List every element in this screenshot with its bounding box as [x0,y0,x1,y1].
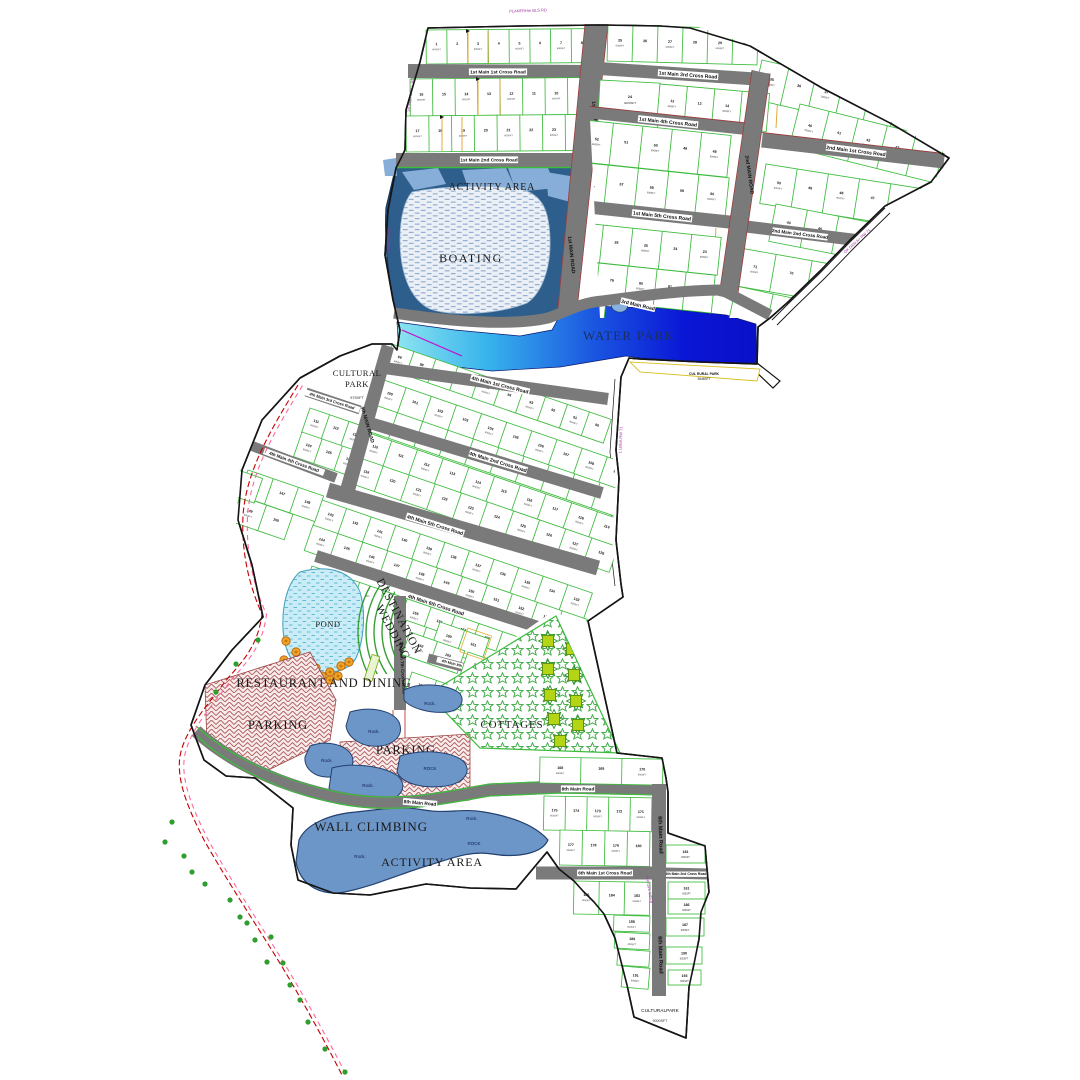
svg-text:172: 172 [616,810,622,814]
svg-text:600SFT: 600SFT [716,47,725,50]
svg-text:600SFT: 600SFT [593,815,602,818]
svg-text:174: 174 [573,809,579,813]
svg-text:52: 52 [595,137,599,141]
svg-text:Rock.: Rock. [368,729,380,734]
svg-text:600SFT: 600SFT [567,849,576,852]
svg-text:12: 12 [509,92,513,96]
svg-text:193: 193 [682,974,688,978]
svg-text:600SFT: 600SFT [627,926,636,929]
svg-text:153: 153 [543,614,550,620]
svg-text:8: 8 [581,41,583,45]
svg-text:78: 78 [581,275,585,279]
svg-text:26: 26 [643,39,647,43]
svg-text:600SFT: 600SFT [550,134,559,137]
svg-text:600SFT: 600SFT [638,773,647,776]
svg-text:600SFT: 600SFT [474,48,483,51]
svg-text:ACTIVITY AREA: ACTIVITY AREA [381,855,483,869]
svg-text:26: 26 [614,240,618,244]
svg-text:10: 10 [554,91,558,95]
svg-text:600SFT: 600SFT [612,850,621,853]
svg-text:7: 7 [560,41,562,45]
svg-text:175: 175 [552,808,558,812]
svg-text:15: 15 [442,92,446,96]
svg-text:49: 49 [683,146,687,150]
svg-text:600SFT: 600SFT [582,899,591,902]
svg-text:38: 38 [851,96,856,101]
svg-text:4th Main 3rd Cross Road: 4th Main 3rd Cross Road [309,391,356,410]
svg-text:Rock.: Rock. [321,758,333,763]
svg-text:191: 191 [633,973,639,978]
svg-text:1st Main 1st Cross Road: 1st Main 1st Cross Road [470,70,526,76]
svg-text:17: 17 [416,129,420,133]
svg-text:183: 183 [634,894,640,898]
svg-text:59: 59 [680,189,684,193]
svg-text:600SFT: 600SFT [515,47,524,50]
svg-text:600SFT: 600SFT [681,929,690,932]
svg-text:WALL CLIMBING: WALL CLIMBING [314,819,428,834]
svg-text:600SFT: 600SFT [898,206,907,210]
svg-text:184: 184 [609,893,615,897]
svg-text:600SFT: 600SFT [550,814,559,817]
svg-text:58: 58 [650,186,654,190]
svg-text:600SFT: 600SFT [417,99,426,102]
svg-text:ROCK: ROCK [467,841,480,846]
svg-text:1: 1 [436,42,438,46]
svg-text:600SFT: 600SFT [680,980,689,983]
svg-text:600SFT: 600SFT [432,48,441,51]
svg-text:RESTAURANT AND DINING: RESTAURANT AND DINING [236,676,411,690]
svg-text:190: 190 [681,952,687,956]
svg-text:3: 3 [477,42,479,46]
svg-text:46: 46 [902,201,907,206]
svg-text:WATER PARK: WATER PARK [583,328,675,343]
svg-text:186: 186 [684,903,690,907]
svg-text:29: 29 [718,41,722,45]
svg-text:9000SFT: 9000SFT [653,1019,669,1023]
svg-text:600SFT: 600SFT [680,958,689,961]
svg-text:CULTURAL: CULTURAL [333,368,382,378]
svg-text:600SFT: 600SFT [552,97,561,100]
svg-text:600SFT: 600SFT [822,283,831,288]
svg-text:13: 13 [487,92,491,96]
svg-text:3646SFT: 3646SFT [697,377,710,381]
svg-text:21: 21 [507,128,511,132]
svg-text:4000SFT: 4000SFT [624,101,637,105]
svg-text:Rock.: Rock. [354,854,366,859]
svg-text:44: 44 [786,221,791,226]
svg-text:25: 25 [618,38,622,42]
svg-text:27: 27 [585,237,589,241]
svg-text:11: 11 [532,92,536,96]
svg-text:1st Main 2nd Cross Road: 1st Main 2nd Cross Road [460,158,517,164]
svg-text:171: 171 [638,810,644,814]
svg-text:16: 16 [419,93,423,97]
svg-text:2: 2 [456,42,458,46]
svg-text:600SFT: 600SFT [633,900,642,903]
svg-text:600SFT: 600SFT [616,44,625,47]
svg-text:181: 181 [683,850,689,854]
svg-text:57: 57 [619,182,623,186]
svg-text:4: 4 [498,42,500,46]
svg-text:12: 12 [670,99,674,103]
svg-text:PARKING: PARKING [248,718,308,732]
svg-text:9750FT: 9750FT [350,395,364,400]
svg-text:49: 49 [808,186,813,191]
svg-text:COTTAGES: COTTAGES [481,719,544,731]
svg-text:177: 177 [568,843,574,847]
svg-text:600SFT: 600SFT [556,772,565,775]
svg-text:47: 47 [870,196,875,201]
svg-text:20: 20 [484,128,488,132]
svg-text:168: 168 [557,766,563,770]
svg-text:22: 22 [529,128,533,132]
svg-text:600SFT: 600SFT [557,47,566,50]
svg-text:187: 187 [682,923,688,927]
svg-text:600SFT: 600SFT [637,816,646,819]
svg-text:51: 51 [624,140,628,144]
svg-text:ACTIVITY AREA: ACTIVITY AREA [449,182,535,193]
svg-text:188: 188 [629,920,635,924]
svg-text:48: 48 [712,150,716,154]
svg-text:50: 50 [777,181,782,186]
svg-text:600SFT: 600SFT [681,856,690,859]
svg-text:25: 25 [644,244,648,248]
svg-text:169: 169 [598,767,604,771]
svg-text:600SFT: 600SFT [666,46,675,49]
svg-text:Rock.: Rock. [362,783,374,788]
svg-text:173: 173 [595,809,601,813]
svg-text:154: 154 [568,623,575,629]
svg-text:179: 179 [613,844,619,848]
svg-text:PLANFRHm BLS RD: PLANFRHm BLS RD [509,7,547,13]
svg-text:600SFT: 600SFT [682,909,691,912]
svg-text:CUL RURAL PARK: CUL RURAL PARK [689,372,720,376]
svg-text:39: 39 [879,103,884,108]
svg-text:600SFT: 600SFT [682,893,691,896]
svg-text:600SFT: 600SFT [628,943,637,946]
svg-text:600SFT: 600SFT [565,628,575,634]
svg-text:5: 5 [519,41,521,45]
svg-text:14: 14 [464,92,468,96]
svg-text:79: 79 [610,278,614,282]
svg-text:170: 170 [639,767,645,771]
svg-text:80: 80 [639,281,643,285]
svg-text:POND: POND [315,619,340,629]
svg-text:600SFT: 600SFT [504,134,513,137]
svg-text:Rock.: Rock. [424,701,436,706]
svg-text:189: 189 [629,937,635,941]
svg-text:24: 24 [673,247,677,251]
svg-text:14: 14 [725,104,729,108]
svg-text:13: 13 [697,101,701,105]
svg-text:8th Main Road: 8th Main Road [562,787,595,793]
svg-text:6: 6 [539,41,541,45]
svg-text:600SFT: 600SFT [413,135,422,138]
svg-text:180: 180 [635,844,641,848]
svg-text:6th Main 1st Cross Road: 6th Main 1st Cross Road [578,871,632,876]
svg-text:23: 23 [552,128,556,132]
svg-text:600SFT: 600SFT [507,98,516,101]
svg-text:6th Main 2nd Cross Road: 6th Main 2nd Cross Road [666,872,707,876]
svg-text:600SFT: 600SFT [459,135,468,138]
svg-text:Rock.: Rock. [466,816,478,821]
svg-text:ROCK: ROCK [423,766,436,771]
svg-text:48: 48 [839,191,844,196]
svg-text:1 LBNA RW 71: 1 LBNA RW 71 [618,426,624,454]
svg-text:47: 47 [881,239,886,244]
svg-text:BOATING: BOATING [439,251,503,265]
svg-text:70: 70 [789,271,794,276]
svg-text:69: 69 [825,277,830,282]
svg-text:28: 28 [693,40,697,44]
svg-text:600SFT: 600SFT [462,98,471,101]
svg-text:60: 60 [710,192,714,196]
svg-text:178: 178 [591,843,597,847]
svg-text:161: 161 [684,887,690,891]
svg-text:71: 71 [753,265,758,270]
svg-text:600SFT: 600SFT [875,108,884,113]
svg-text:23: 23 [703,250,707,254]
svg-text:50: 50 [654,143,658,147]
svg-text:27: 27 [668,40,672,44]
svg-text:PARK: PARK [345,379,369,389]
svg-text:CULTURALPARK: CULTURALPARK [641,1008,679,1014]
